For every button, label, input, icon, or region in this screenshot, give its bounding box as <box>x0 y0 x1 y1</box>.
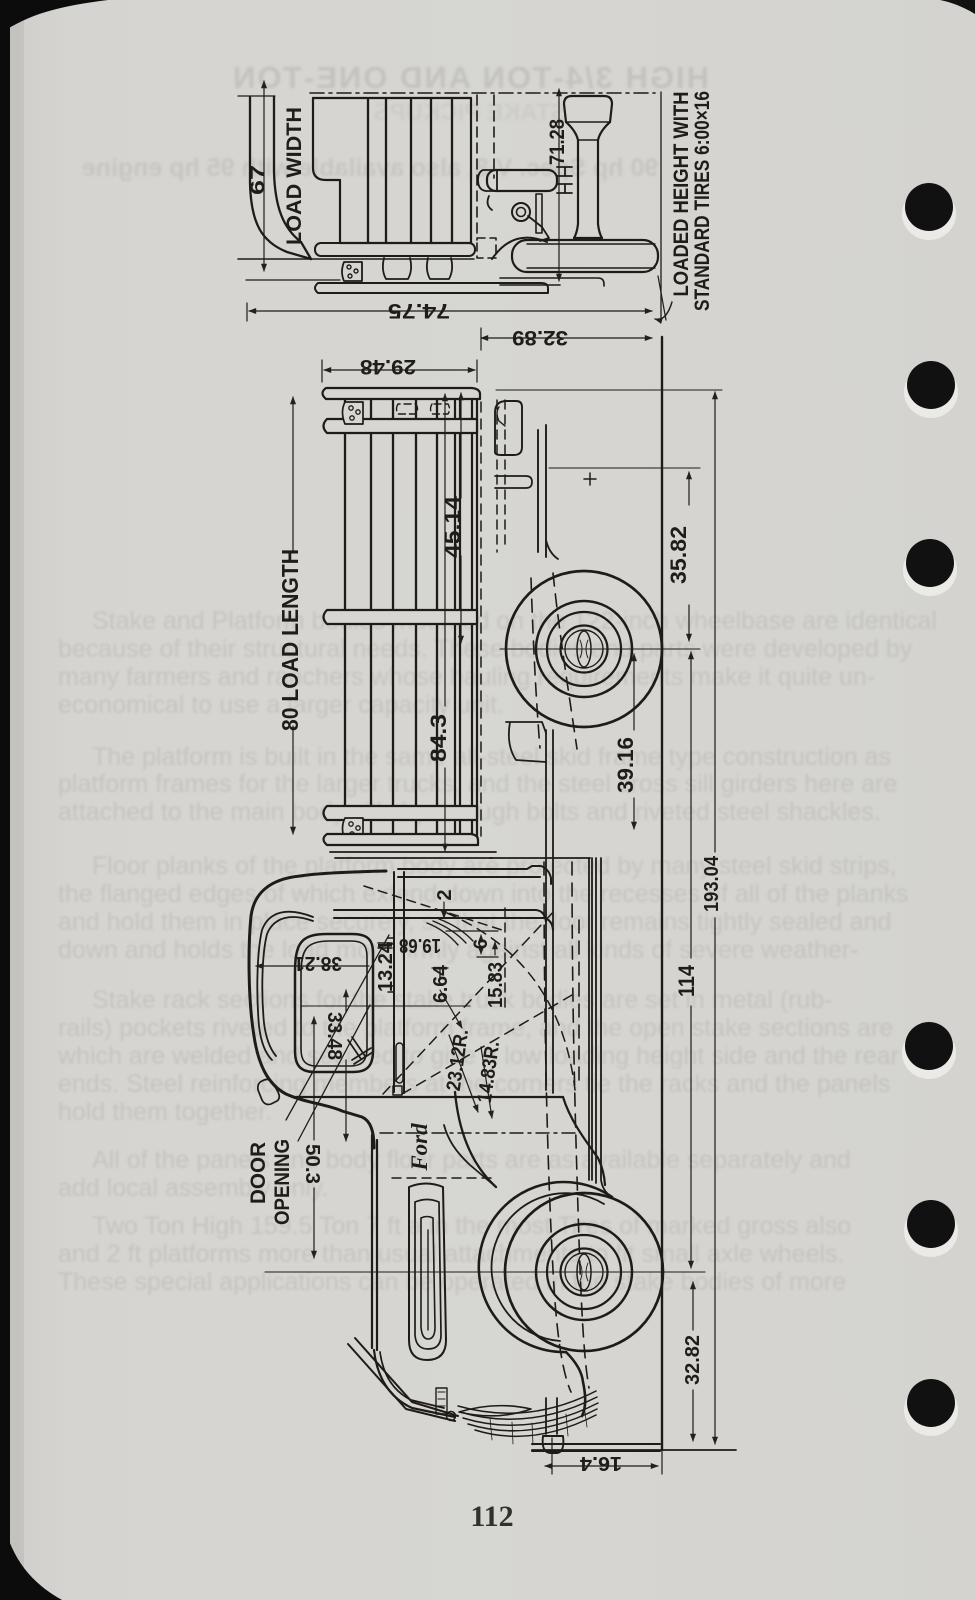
svg-text:33.48: 33.48 <box>323 1012 345 1060</box>
svg-text:84.3: 84.3 <box>426 714 451 762</box>
svg-text:13.24: 13.24 <box>375 941 397 992</box>
svg-text:hold them together.: hold them together. <box>58 1098 272 1126</box>
svg-text:STANDARD TIRES 6:00×16: STANDARD TIRES 6:00×16 <box>691 91 714 311</box>
svg-text:114: 114 <box>674 964 699 997</box>
svg-text:16.4: 16.4 <box>579 1452 622 1474</box>
svg-text:67: 67 <box>248 165 269 195</box>
svg-text:Floor planks of the platform b: Floor planks of the platform body are pr… <box>92 852 897 880</box>
svg-text:and 2 ft platforms more than u: and 2 ft platforms more than usual attac… <box>58 1240 845 1268</box>
svg-text:32.82: 32.82 <box>682 1335 704 1385</box>
svg-text:19.68: 19.68 <box>399 934 441 956</box>
svg-text:LOADED HEIGHT WITH: LOADED HEIGHT WITH <box>670 92 693 297</box>
svg-text:Ford: Ford <box>407 1123 432 1172</box>
svg-text:80 LOAD LENGTH: 80 LOAD LENGTH <box>277 549 303 731</box>
svg-text:112: 112 <box>470 1500 513 1533</box>
svg-text:down and holds the load more f: down and holds the load more firmly agai… <box>58 936 858 964</box>
svg-text:rails) pockets riveted to the: rails) pockets riveted to the platform f… <box>58 1014 893 1042</box>
svg-text:the flanged edges of which ext: the flanged edges of which extend down i… <box>58 880 909 908</box>
svg-text:38.21: 38.21 <box>294 952 342 974</box>
svg-text:39.16: 39.16 <box>613 737 638 793</box>
svg-text:LOAD WIDTH: LOAD WIDTH <box>283 107 306 245</box>
svg-text:6: 6 <box>471 939 492 950</box>
svg-text:35.82: 35.82 <box>666 526 691 584</box>
svg-text:DOOR: DOOR <box>247 1142 270 1204</box>
svg-text:29.48: 29.48 <box>360 355 416 378</box>
svg-text:90 hp Spec. V-8, also availabl: 90 hp Spec. V-8, also available with 95 … <box>82 154 659 182</box>
svg-text:because of their structural ne: because of their structural needs. These… <box>58 635 913 663</box>
svg-text:OPENING: OPENING <box>271 1139 294 1225</box>
svg-text:Two Ton High 159.5 Ton 7: Two Ton High 159.5 Ton 7 ft a in the mos… <box>92 1212 851 1240</box>
svg-text:71.28: 71.28 <box>546 119 569 165</box>
svg-text:The platform is built in the s: The platform is built in the same all-st… <box>92 743 891 771</box>
svg-text:45.14: 45.14 <box>440 495 465 558</box>
svg-text:HIGH 3/4-TON AND ONE-TON: HIGH 3/4-TON AND ONE-TON <box>231 60 709 95</box>
svg-text:Stake rack sections for the st: Stake rack sections for the stake truck … <box>92 986 833 1014</box>
svg-text:6.64: 6.64 <box>430 964 452 1003</box>
svg-text:15.83: 15.83 <box>485 962 507 1008</box>
svg-text:and hold them in place securel: and hold them in place securely, so that… <box>58 908 891 936</box>
svg-text:193.04: 193.04 <box>701 855 723 912</box>
svg-text:2: 2 <box>434 889 456 900</box>
svg-text:74.75: 74.75 <box>388 299 450 322</box>
svg-text:many farmers and ranchers: many farmers and ranchers whose hauling … <box>58 663 875 691</box>
svg-text:All of the panels and body flo: All of the panels and body floor parts a… <box>92 1146 851 1174</box>
svg-text:32.89: 32.89 <box>512 326 568 349</box>
svg-text:50.3: 50.3 <box>301 1144 323 1184</box>
